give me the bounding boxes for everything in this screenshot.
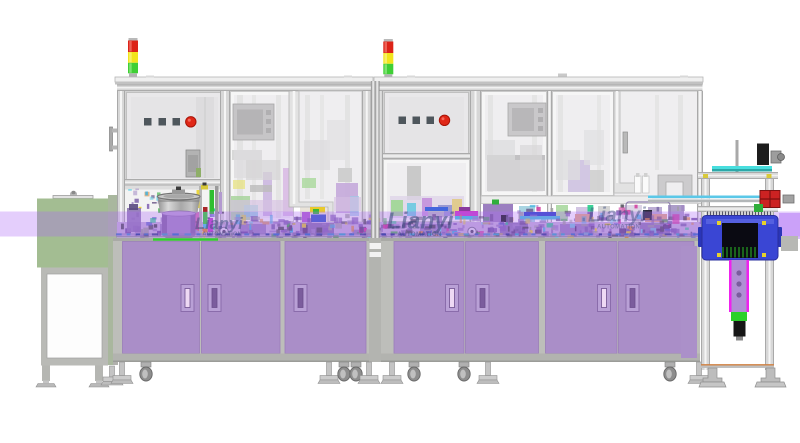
svg-text:Lianyi: Lianyi [387, 208, 454, 234]
svg-text:AUTOMATION: AUTOMATION [202, 232, 241, 238]
svg-text:Lianyi: Lianyi [195, 215, 243, 233]
svg-text:AUTOMATION: AUTOMATION [397, 231, 442, 238]
svg-text:AUTOMATION: AUTOMATION [597, 225, 640, 231]
svg-text:Lianyi: Lianyi [588, 205, 646, 227]
